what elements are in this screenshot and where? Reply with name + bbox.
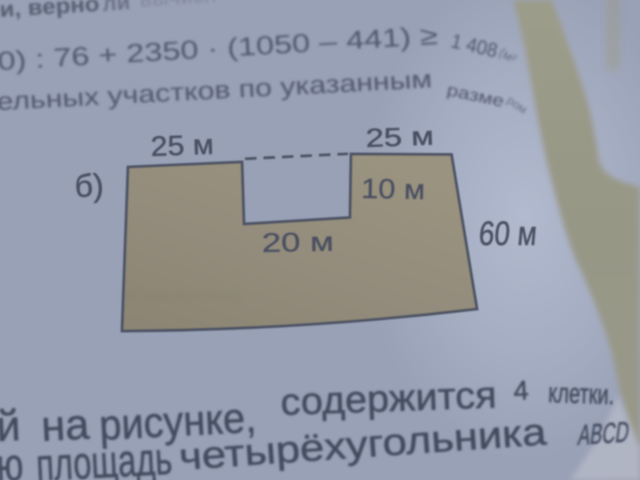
svg-text:ABCD: ABCD bbox=[576, 416, 631, 452]
svg-text:20 м: 20 м bbox=[262, 227, 335, 258]
svg-text:60 м: 60 м bbox=[477, 215, 538, 253]
svg-text:б): б) bbox=[74, 167, 104, 204]
svg-text:площадь: площадь bbox=[35, 432, 174, 480]
svg-text:клетки.: клетки. bbox=[548, 377, 615, 410]
svg-text:ли: ли bbox=[102, 0, 131, 16]
svg-text:10 м: 10 м bbox=[361, 173, 426, 205]
svg-text:25 м: 25 м bbox=[150, 129, 214, 162]
svg-text:25 м: 25 м bbox=[365, 121, 434, 153]
svg-text:4: 4 bbox=[513, 375, 530, 406]
svg-text:пв гзсвтжпэ мпas: пв гзсвтжпэ мпas bbox=[120, 287, 239, 304]
svg-text:ю: ю bbox=[0, 438, 24, 480]
